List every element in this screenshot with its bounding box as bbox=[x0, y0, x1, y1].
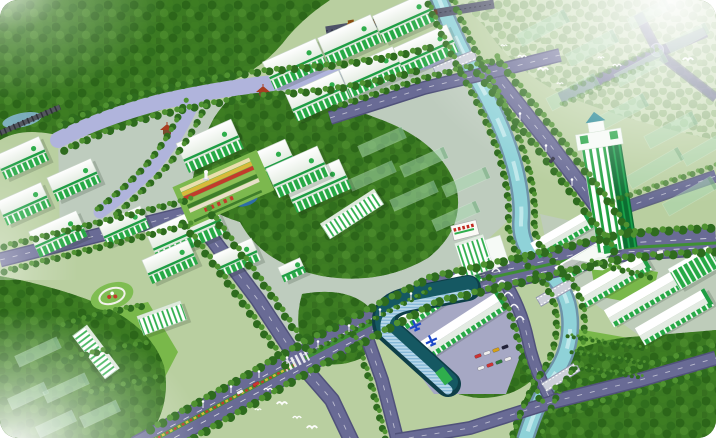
light-lamp bbox=[258, 370, 261, 373]
masterplan-scene bbox=[0, 0, 716, 438]
bottom-left-haze bbox=[0, 280, 230, 438]
rendering-frame: Aerial master-plan rendering of a green … bbox=[0, 0, 716, 438]
light-lamp bbox=[230, 385, 233, 388]
top-right-haze bbox=[370, 0, 716, 250]
light-lamp bbox=[348, 324, 351, 327]
light-lamp bbox=[410, 292, 413, 295]
light-lamp bbox=[286, 356, 289, 359]
light-lamp bbox=[317, 340, 320, 343]
statue-head bbox=[204, 170, 208, 174]
light-lamp bbox=[379, 308, 382, 311]
left-edge-haze bbox=[0, 110, 90, 280]
